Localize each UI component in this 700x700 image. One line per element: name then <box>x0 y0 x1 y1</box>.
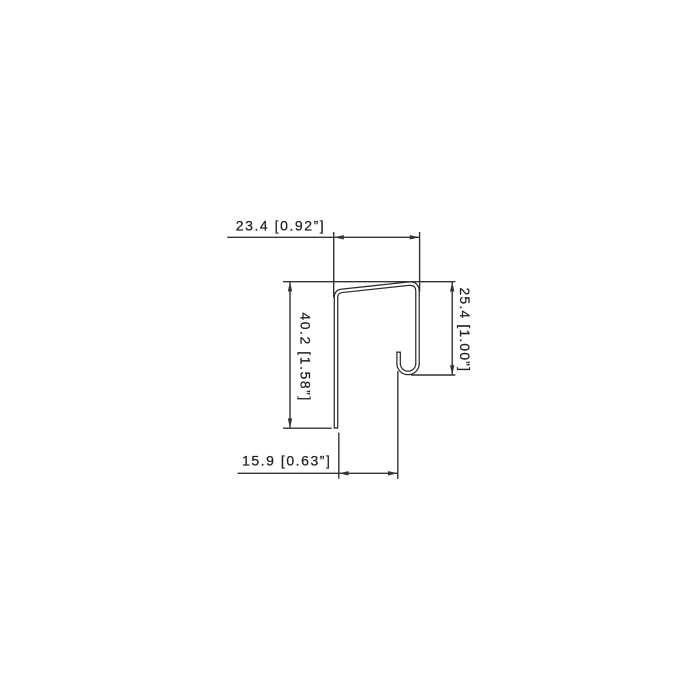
svg-text:25.4 [1.00”]: 25.4 [1.00”] <box>457 288 473 373</box>
svg-text:23.4 [0.92”]: 23.4 [0.92”] <box>236 218 325 234</box>
svg-text:15.9 [0.63”]: 15.9 [0.63”] <box>242 452 331 468</box>
svg-text:40.2 [1.58”]: 40.2 [1.58”] <box>297 312 313 401</box>
